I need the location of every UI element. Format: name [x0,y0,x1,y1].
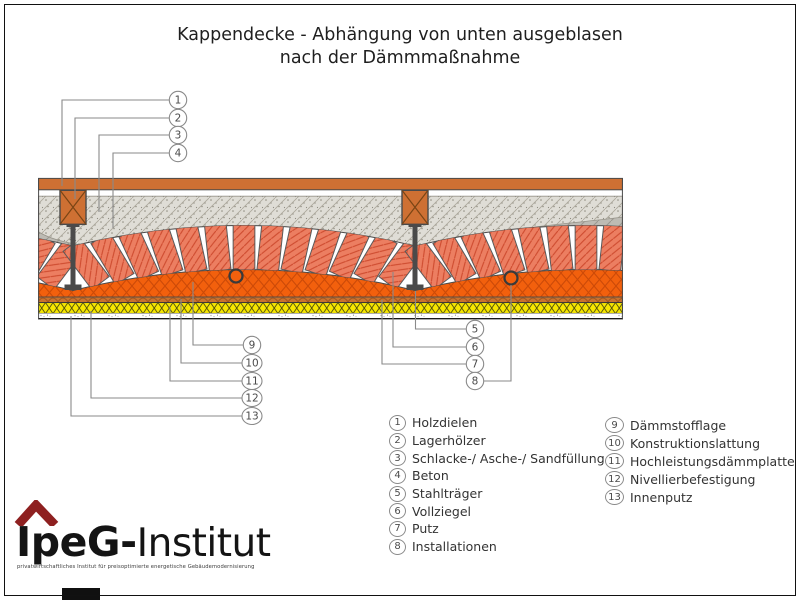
legend-label: Innenputz [630,490,692,505]
legend-number-badge: 8 [389,539,406,555]
legend-item-1: 1Holzdielen [389,414,605,432]
legend-label: Hochleistungsdämmplatte [630,454,795,469]
legend-label: Holzdielen [412,415,477,430]
svg-text:1: 1 [175,95,182,107]
layer-holzdielen-floorboards [38,178,623,189]
callout-7: 7 [466,355,483,372]
brick [599,222,626,272]
svg-text:3: 3 [175,130,182,142]
beam-bottom-flange [407,285,424,291]
legend-number-badge: 13 [605,489,624,505]
legend-label: Vollziegel [412,504,471,519]
logo-wordmark: IpeG-Institut [16,518,271,566]
svg-text:2: 2 [175,113,182,125]
legend-label: Putz [412,521,439,536]
legend-item-5: 5Stahlträger [389,485,605,503]
layer-innenputz-texture [38,313,623,318]
legend-item-7: 7Putz [389,520,605,538]
svg-text:9: 9 [249,340,256,352]
legend-item-3: 3Schlacke-/ Asche-/ Sandfüllung [389,449,605,467]
legend-number-badge: 7 [389,521,406,537]
brick [233,223,255,271]
legend-number-badge: 5 [389,486,406,502]
legend-item-12: 12Nivellierbefestigung [605,470,795,488]
callout-4: 4 [169,144,186,161]
beam-bottom-flange [65,285,82,291]
legend-number-badge: 10 [605,435,624,451]
legend-number-badge: 2 [389,433,406,449]
callout-10: 10 [242,355,262,372]
legend-item-6: 6Vollziegel [389,502,605,520]
callout-12: 12 [242,390,262,407]
callout-8: 8 [466,372,483,389]
installation-pipe-left [230,270,243,283]
legend-item-11: 11Hochleistungsdämmplatte [605,452,795,470]
legend-label: Lagerhölzer [412,433,486,448]
legend-label: Konstruktionslattung [630,436,760,451]
layer-batten-scallop-texture [38,297,623,303]
legend-number-badge: 12 [605,471,624,487]
beam-web [71,224,76,287]
legend-item-13: 13Innenputz [605,488,795,506]
brick [257,222,284,272]
legend-column-left: 1Holzdielen 2Lagerhölzer 3Schlacke-/ Asc… [389,414,605,556]
logo-tagline: privatwirtschaftliches Institut für prei… [17,564,254,570]
ipeg-institut-logo: IpeG-Institut privatwirtschaftliches Ins… [14,498,294,578]
legend-item-9: 9Dämmstofflage [605,416,795,434]
leader-13 [71,316,243,416]
callout-1: 1 [169,91,186,108]
legend-label: Nivellierbefestigung [630,472,755,487]
callout-5: 5 [466,320,483,337]
legend-column-right: 9Dämmstofflage 10Konstruktionslattung 11… [605,416,795,506]
svg-text:5: 5 [472,324,479,336]
callout-13: 13 [242,408,262,425]
svg-text:13: 13 [245,411,258,423]
leader-1 [62,100,169,186]
legend-number-badge: 4 [389,468,406,484]
legend-label: Dämmstofflage [630,418,726,433]
brick [546,222,573,272]
brick [575,223,597,271]
legend-number-badge: 9 [605,417,624,433]
legend-item-2: 2Lagerhölzer [389,432,605,450]
callout-2: 2 [169,109,186,126]
legend-label: Beton [412,468,449,483]
svg-text:6: 6 [472,342,479,354]
logo-text-bold: IpeG- [16,518,137,566]
legend-item-8: 8Installationen [389,538,605,556]
legend-number-badge: 1 [389,415,406,431]
beam-web [413,224,418,287]
svg-text:12: 12 [245,393,258,405]
callout-6: 6 [466,338,483,355]
page: Kappendecke - Abhängung von unten ausgeb… [0,0,800,600]
bottom-edge-mark [62,588,100,600]
svg-text:7: 7 [472,359,479,371]
legend-item-4: 4Beton [389,467,605,485]
legend-label: Schlacke-/ Asche-/ Sandfüllung [412,451,605,466]
logo-text-rest: Institut [137,521,271,566]
legend-number-badge: 11 [605,453,624,469]
legend-number-badge: 6 [389,503,406,519]
brick [623,223,654,274]
legend-number-badge: 3 [389,450,406,466]
callout-3: 3 [169,126,186,143]
legend-item-10: 10Konstruktionslattung [605,434,795,452]
svg-text:11: 11 [245,376,258,388]
brick [204,222,231,272]
callout-11: 11 [242,373,262,390]
callout-9: 9 [243,336,260,353]
layer-hochleistungsdaemmplatte-board [38,303,623,314]
leader-12 [91,311,243,398]
installation-pipe-right [505,272,518,285]
svg-text:8: 8 [472,376,479,388]
svg-text:4: 4 [175,148,182,160]
legend-label: Installationen [412,539,497,554]
legend-label: Stahlträger [412,486,482,501]
svg-text:10: 10 [245,358,258,370]
